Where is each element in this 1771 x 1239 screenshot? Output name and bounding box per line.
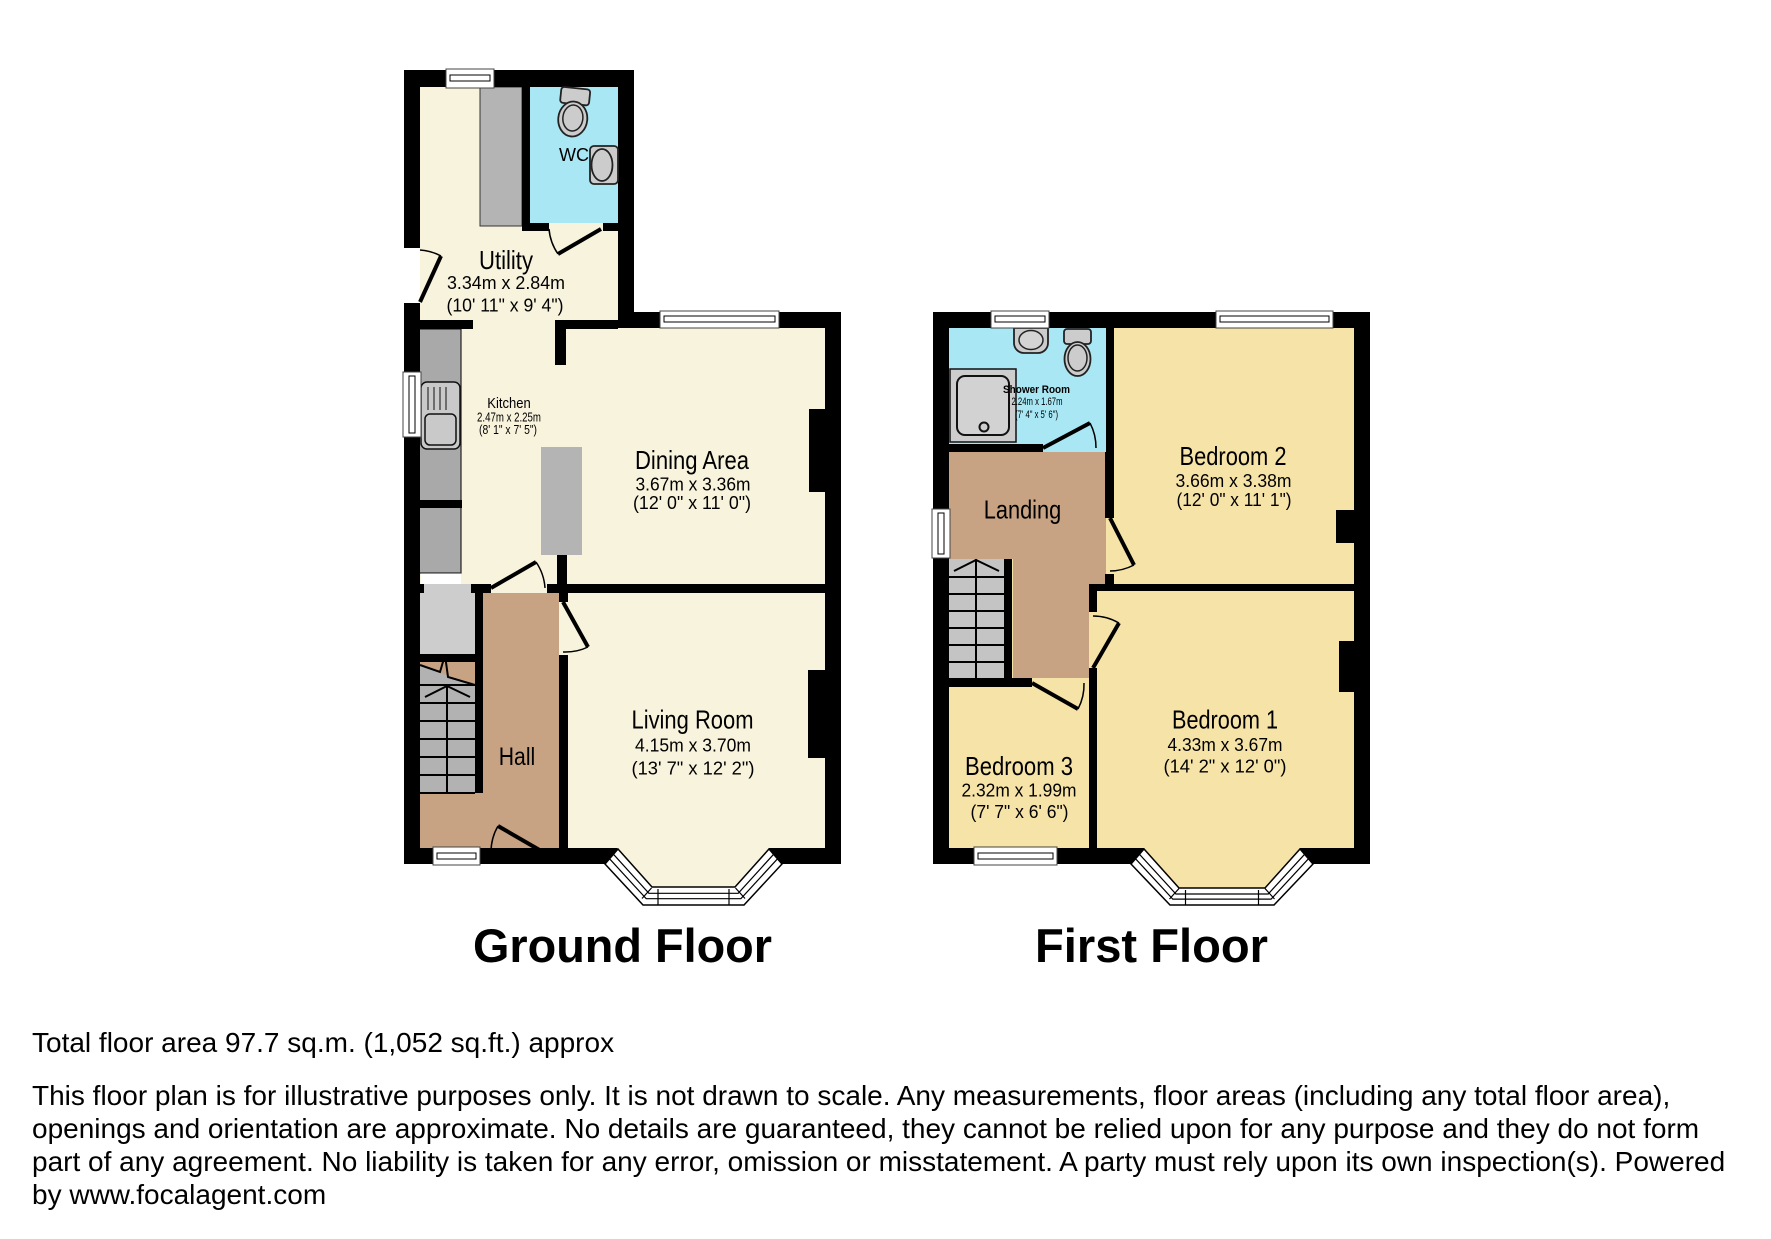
svg-text:(12' 0" x 11' 1"): (12' 0" x 11' 1"): [1177, 490, 1292, 510]
svg-text:(7' 7" x 6' 6"): (7' 7" x 6' 6"): [971, 802, 1069, 822]
svg-text:Living Room: Living Room: [632, 705, 754, 735]
svg-text:Ground Floor: Ground Floor: [473, 919, 772, 972]
svg-text:3.66m x 3.38m: 3.66m x 3.38m: [1176, 471, 1292, 491]
svg-text:Shower Room: Shower Room: [1003, 384, 1070, 396]
svg-text:(10' 11" x 9' 4"): (10' 11" x 9' 4"): [447, 296, 564, 316]
svg-text:(13' 7" x 12' 2"): (13' 7" x 12' 2"): [632, 758, 755, 779]
svg-text:4.33m x 3.67m: 4.33m x 3.67m: [1168, 735, 1283, 755]
svg-text:Bedroom 2: Bedroom 2: [1180, 441, 1287, 471]
svg-text:(14' 2" x 12' 0"): (14' 2" x 12' 0"): [1164, 757, 1287, 777]
svg-text:(7' 4" x 5' 6"): (7' 4" x 5' 6"): [1015, 409, 1058, 421]
svg-text:Bedroom 1: Bedroom 1: [1172, 705, 1278, 735]
svg-text:First Floor: First Floor: [1035, 919, 1268, 972]
svg-text:This floor plan is for illustr: This floor plan is for illustrative purp…: [32, 1080, 1670, 1111]
svg-text:Utility: Utility: [479, 245, 533, 275]
svg-text:2.32m x 1.99m: 2.32m x 1.99m: [962, 781, 1077, 801]
svg-text:openings and orientation are a: openings and orientation are approximate…: [32, 1113, 1699, 1144]
svg-text:3.67m x 3.36m: 3.67m x 3.36m: [636, 475, 751, 495]
svg-text:4.15m x 3.70m: 4.15m x 3.70m: [635, 735, 751, 756]
svg-text:by www.focalagent.com: by www.focalagent.com: [32, 1179, 326, 1210]
svg-text:3.34m x 2.84m: 3.34m x 2.84m: [447, 273, 565, 293]
svg-text:(12' 0" x 11' 0"): (12' 0" x 11' 0"): [633, 493, 751, 513]
svg-text:Dining Area: Dining Area: [635, 445, 749, 475]
svg-text:Landing: Landing: [984, 495, 1062, 525]
svg-text:part of any agreement. No liab: part of any agreement. No liability is t…: [32, 1146, 1725, 1177]
svg-text:2.24m x 1.67m: 2.24m x 1.67m: [1012, 396, 1063, 408]
svg-text:Bedroom 3: Bedroom 3: [965, 751, 1073, 781]
svg-text:WC: WC: [559, 145, 589, 165]
svg-text:Hall: Hall: [499, 743, 536, 771]
svg-text:(8' 1" x 7' 5"): (8' 1" x 7' 5"): [479, 423, 537, 437]
svg-text:Total floor area 97.7 sq.m. (1: Total floor area 97.7 sq.m. (1,052 sq.ft…: [32, 1027, 614, 1058]
